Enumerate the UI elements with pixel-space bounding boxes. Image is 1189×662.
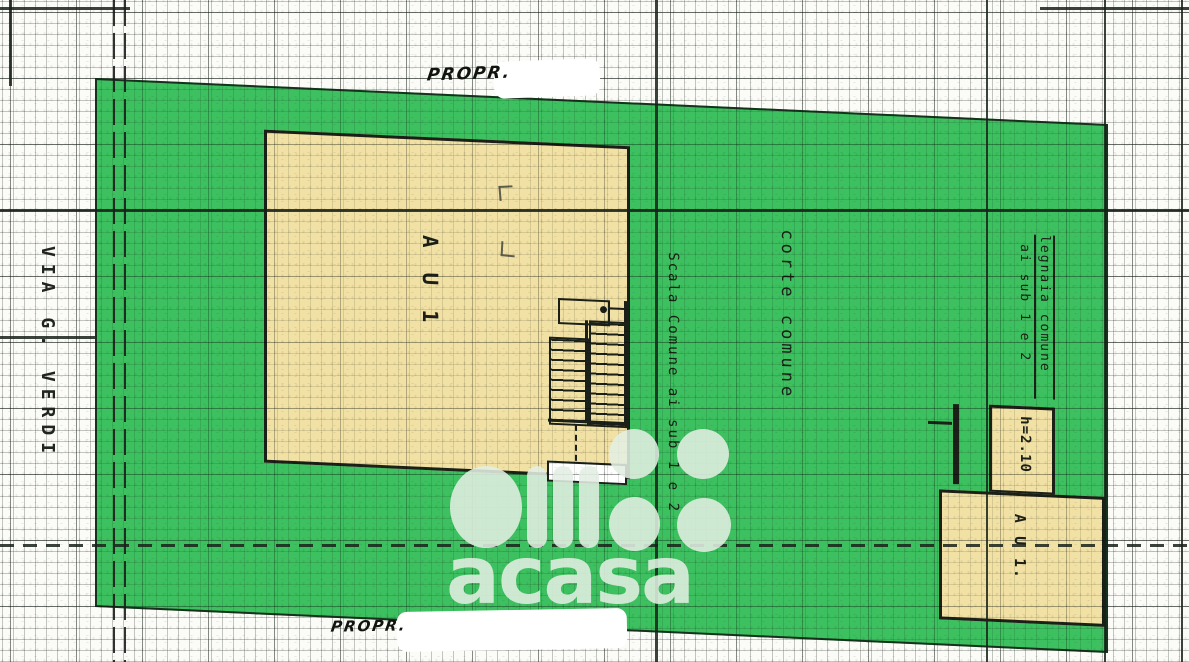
road-line-outer xyxy=(124,0,126,662)
owner-label-bottom: PROPR. xyxy=(330,616,409,635)
stair-dashed-connector xyxy=(575,425,577,461)
woodshed-label: legnaia comune ai sub 1 e 2 xyxy=(1017,234,1055,400)
stair-landing xyxy=(547,461,627,486)
parcel-green-area: A U 1 Scala Comune ai sub 1 e 2 corte co… xyxy=(95,78,1108,653)
gridline-top-left-tick xyxy=(0,7,130,10)
gridline-vertical-center xyxy=(655,0,658,662)
main-building-label: A U 1 xyxy=(418,235,442,356)
gridline-parcel-right-edge xyxy=(1104,0,1106,662)
stair-right-wall xyxy=(624,301,629,425)
gridline-page-right-edge xyxy=(1181,0,1183,662)
road-line-inner xyxy=(113,0,115,662)
boundary-wall-tick xyxy=(928,421,952,425)
gridline-horizontal-major xyxy=(0,209,1189,212)
boundary-wall-mark xyxy=(953,404,959,484)
secondary-building-label: A U 1. xyxy=(1011,514,1029,585)
courtyard-label: corte comune xyxy=(777,229,797,500)
woodshed-label-line1: legnaia comune xyxy=(1034,235,1055,400)
owner-label-top: PROPR. xyxy=(426,62,513,85)
street-label: VIA G. VERDI xyxy=(37,246,58,446)
pencil-mark-2 xyxy=(501,241,516,257)
pencil-mark-1 xyxy=(498,185,513,201)
stair-flight-right xyxy=(589,320,627,428)
gridline-top-left-vertical xyxy=(9,0,12,86)
gridline-horizontal-dashed xyxy=(0,544,1189,547)
stair-divider-wall xyxy=(585,320,588,422)
stairs-label: Scala Comune ai sub 1 e 2 xyxy=(665,252,681,533)
gridline-vertical-right xyxy=(986,0,988,662)
annex-height-label: h=2.10 xyxy=(1017,416,1033,481)
stair-flight-left xyxy=(549,337,589,427)
gridline-top-right-tick xyxy=(1040,7,1189,10)
stair-newel-dot xyxy=(600,306,607,313)
woodshed-label-line2: ai sub 1 e 2 xyxy=(1017,234,1034,399)
graph-paper: A U 1 Scala Comune ai sub 1 e 2 corte co… xyxy=(0,0,1189,662)
redaction-bottom xyxy=(397,608,628,652)
